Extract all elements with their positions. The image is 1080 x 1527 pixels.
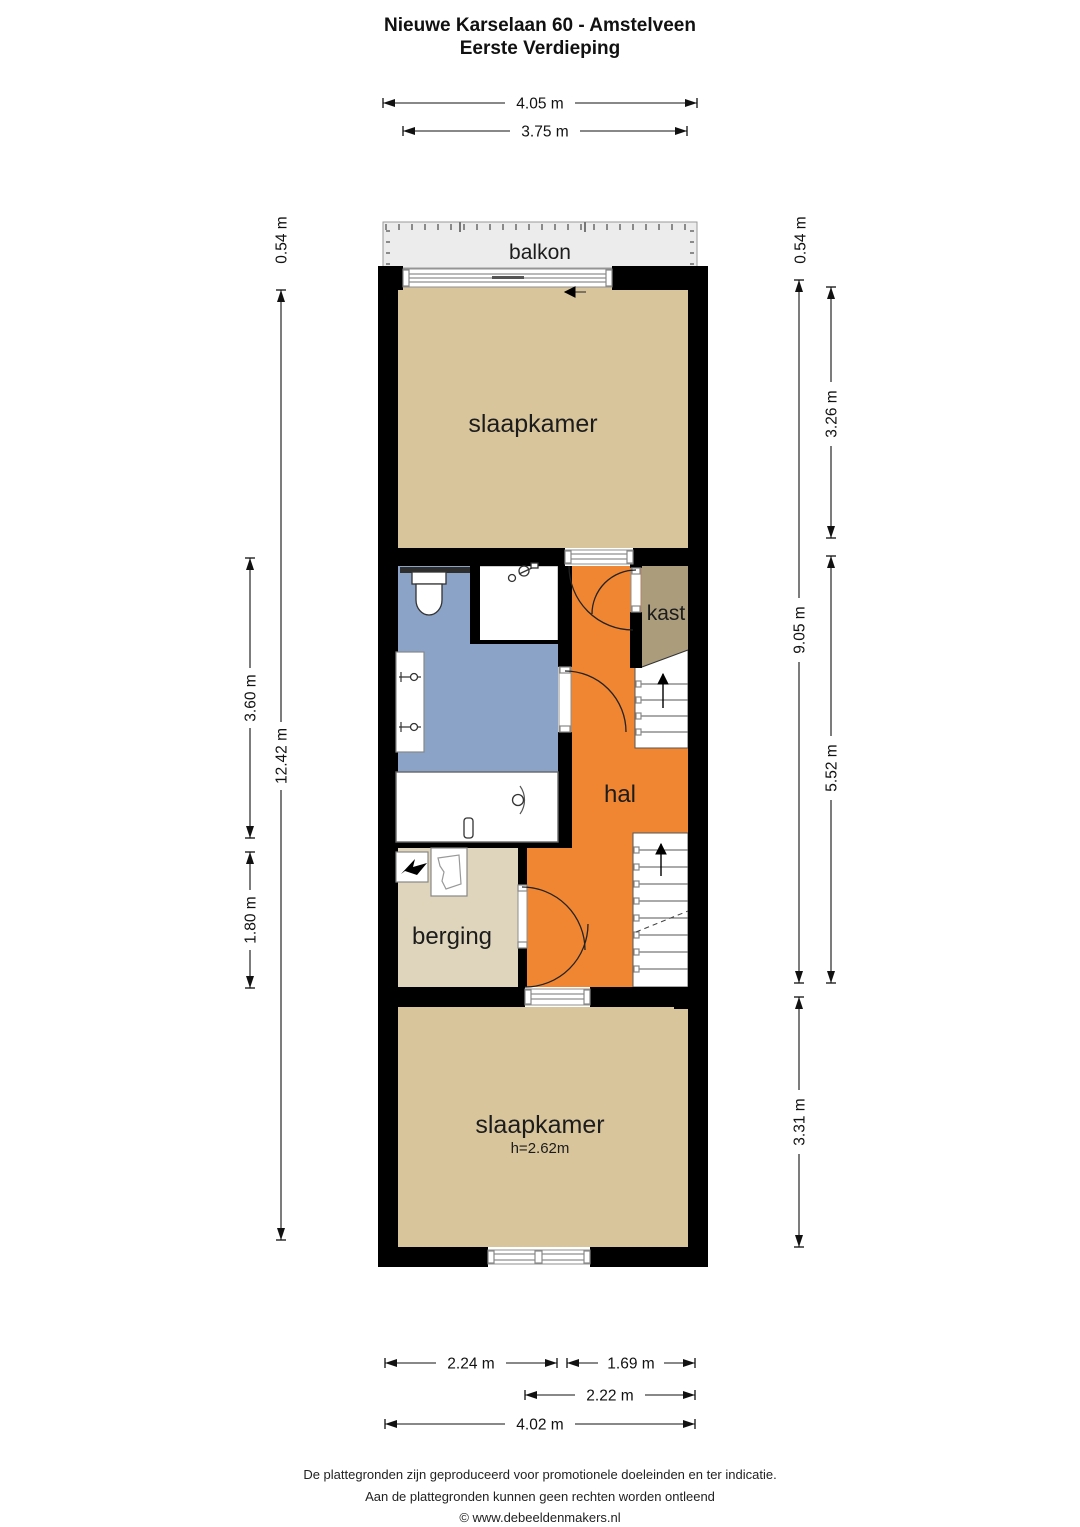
dimension-right-326: 3.26 m bbox=[823, 287, 840, 538]
dimension-left-1242: 12.42 m bbox=[273, 290, 290, 1240]
disclaimer-line-3: © www.debeeldenmakers.nl bbox=[0, 1507, 1080, 1527]
dimension-left-360: 3.60 m bbox=[242, 558, 259, 838]
svg-text:1.69 m: 1.69 m bbox=[607, 1355, 654, 1372]
svg-text:3.31 m: 3.31 m bbox=[791, 1098, 808, 1145]
bedroom-bottom-label: slaapkamer bbox=[475, 1111, 604, 1139]
dimension-bottom-224: 2.24 m bbox=[385, 1355, 557, 1372]
svg-text:2.22 m: 2.22 m bbox=[586, 1387, 633, 1404]
svg-text:0.54 m: 0.54 m bbox=[273, 216, 290, 263]
dimension-left-054: 0.54 m bbox=[273, 216, 290, 263]
closet-label: kast bbox=[647, 602, 686, 625]
bedroom-bottom-ceiling-height: h=2.62m bbox=[511, 1140, 570, 1157]
dimension-bottom-169: 1.69 m bbox=[567, 1355, 695, 1372]
svg-text:5.52 m: 5.52 m bbox=[823, 744, 840, 791]
svg-text:12.42 m: 12.42 m bbox=[273, 728, 290, 784]
svg-text:4.02 m: 4.02 m bbox=[516, 1416, 563, 1433]
bedroom-top-label: slaapkamer bbox=[468, 410, 597, 438]
dimension-right-331: 3.31 m bbox=[791, 997, 808, 1247]
shower-floor bbox=[478, 566, 558, 642]
dimension-right-552: 5.52 m bbox=[823, 556, 840, 983]
dimension-top-375: 3.75 m bbox=[403, 123, 687, 140]
balcony-room: balkon bbox=[383, 222, 697, 268]
dimension-right-905: 9.05 m bbox=[791, 280, 808, 983]
dimension-right-054: 0.54 m bbox=[792, 216, 809, 263]
dimension-bottom-222: 2.22 m bbox=[525, 1387, 695, 1404]
stairs-lower bbox=[633, 833, 688, 987]
floorplan-page: Nieuwe Karselaan 60 - Amstelveen Eerste … bbox=[0, 0, 1080, 1527]
disclaimer-line-1: De plattegronden zijn geproduceerd voor … bbox=[0, 1464, 1080, 1486]
dimension-bottom-402: 4.02 m bbox=[385, 1416, 695, 1433]
dimension-top-405: 4.05 m bbox=[383, 95, 697, 112]
svg-text:3.75 m: 3.75 m bbox=[521, 123, 568, 140]
svg-text:2.24 m: 2.24 m bbox=[447, 1355, 494, 1372]
bathroom-vanity bbox=[396, 652, 424, 752]
mechanical-ventilation-unit bbox=[396, 852, 428, 882]
floorplan-drawing: balkon bbox=[0, 0, 1080, 1527]
disclaimer: De plattegronden zijn geproduceerd voor … bbox=[0, 1464, 1080, 1527]
svg-text:0.54 m: 0.54 m bbox=[792, 216, 809, 263]
svg-text:1.80 m: 1.80 m bbox=[242, 896, 259, 943]
window-bottom bbox=[488, 1250, 590, 1264]
dimension-left-180: 1.80 m bbox=[242, 852, 259, 988]
svg-text:9.05 m: 9.05 m bbox=[791, 606, 808, 653]
storage-label: berging bbox=[412, 923, 492, 950]
svg-text:3.60 m: 3.60 m bbox=[242, 674, 259, 721]
boiler-unit bbox=[431, 848, 467, 896]
hall-label: hal bbox=[604, 781, 636, 808]
svg-text:3.26 m: 3.26 m bbox=[823, 390, 840, 437]
wall-notch bbox=[674, 995, 690, 1009]
disclaimer-line-2: Aan de plattegronden kunnen geen rechten… bbox=[0, 1486, 1080, 1508]
bathtub bbox=[396, 772, 558, 842]
balcony-label: balkon bbox=[509, 241, 571, 264]
svg-text:4.05 m: 4.05 m bbox=[516, 95, 563, 112]
